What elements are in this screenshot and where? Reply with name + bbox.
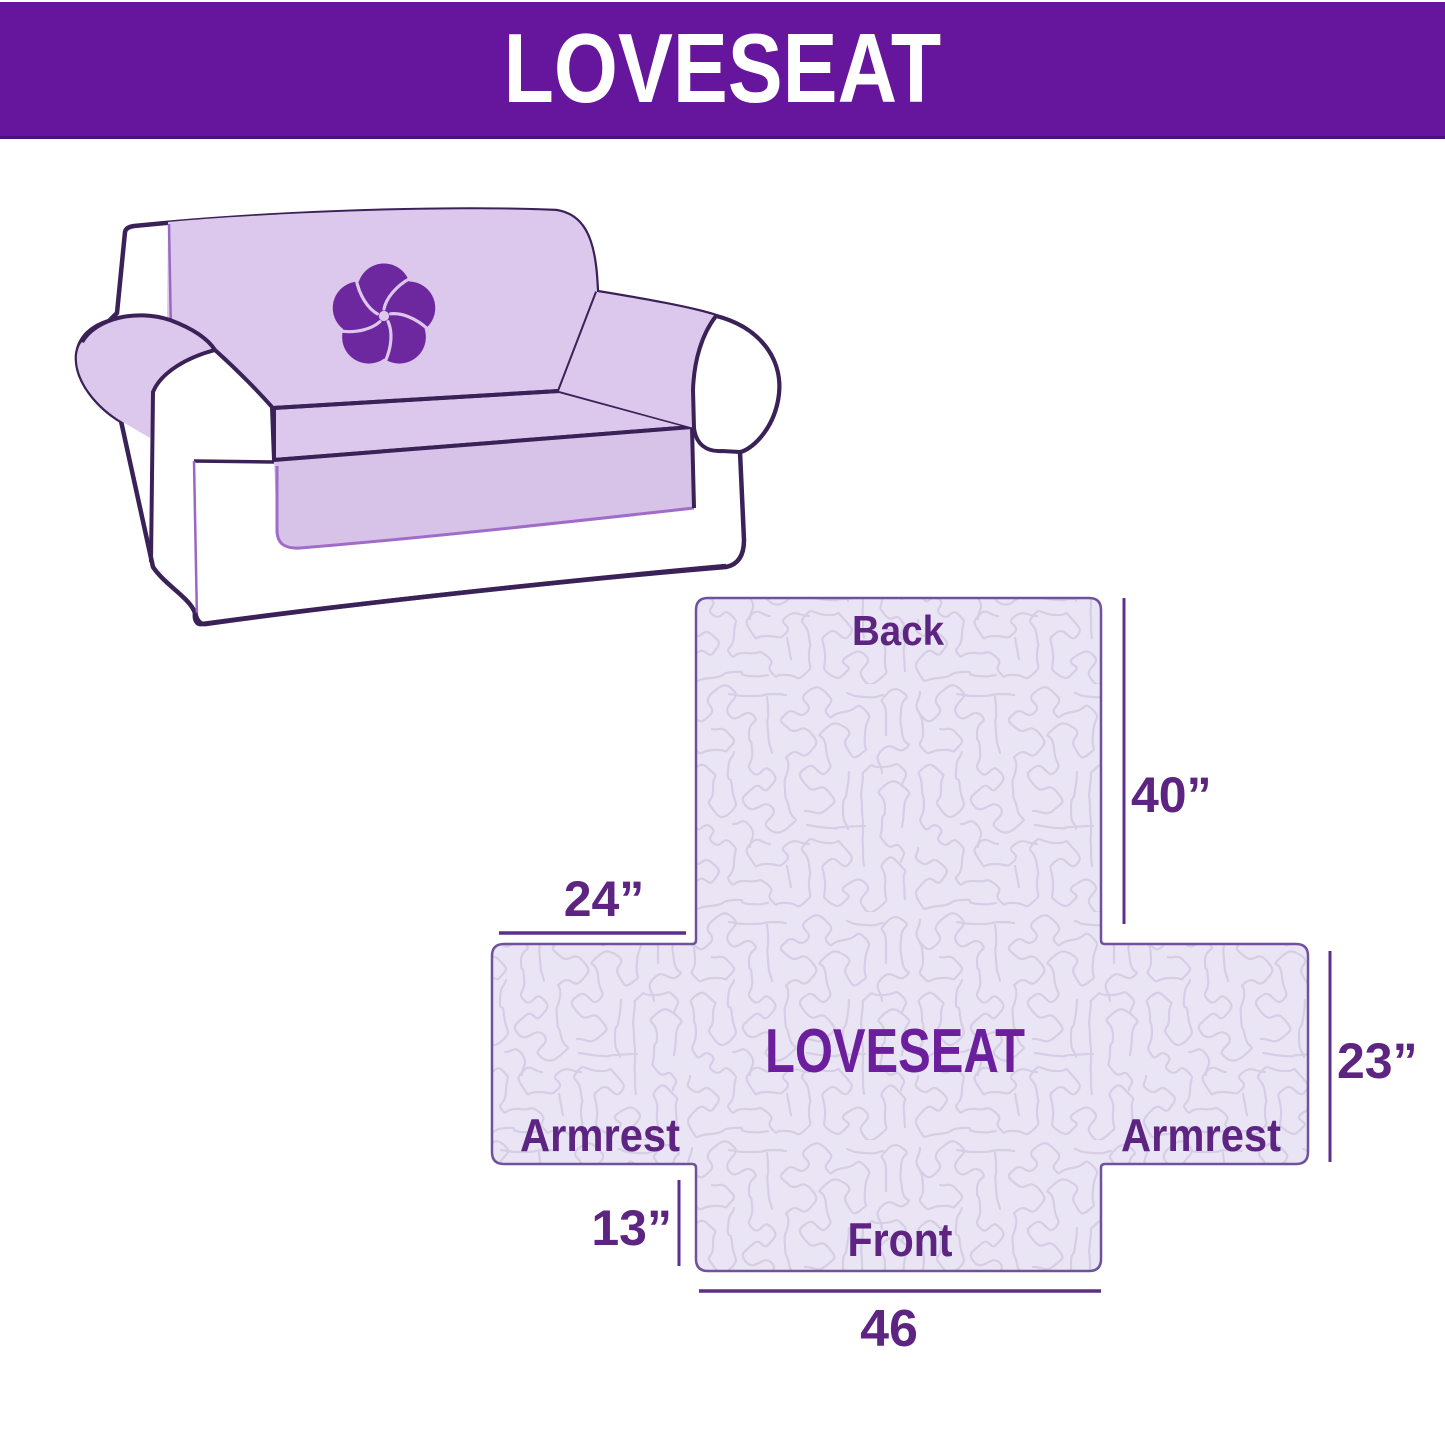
svg-text:40”: 40” bbox=[1131, 767, 1212, 823]
svg-text:Front: Front bbox=[848, 1213, 953, 1266]
svg-text:Back: Back bbox=[852, 607, 945, 654]
svg-text:LOVESEAT: LOVESEAT bbox=[765, 1017, 1025, 1086]
svg-text:Armrest: Armrest bbox=[520, 1109, 680, 1161]
svg-text:23”: 23” bbox=[1337, 1033, 1418, 1089]
svg-text:13”: 13” bbox=[591, 1200, 672, 1256]
svg-text:46: 46 bbox=[860, 1300, 918, 1358]
svg-text:Armrest: Armrest bbox=[1121, 1109, 1281, 1161]
svg-text:24”: 24” bbox=[564, 871, 645, 927]
